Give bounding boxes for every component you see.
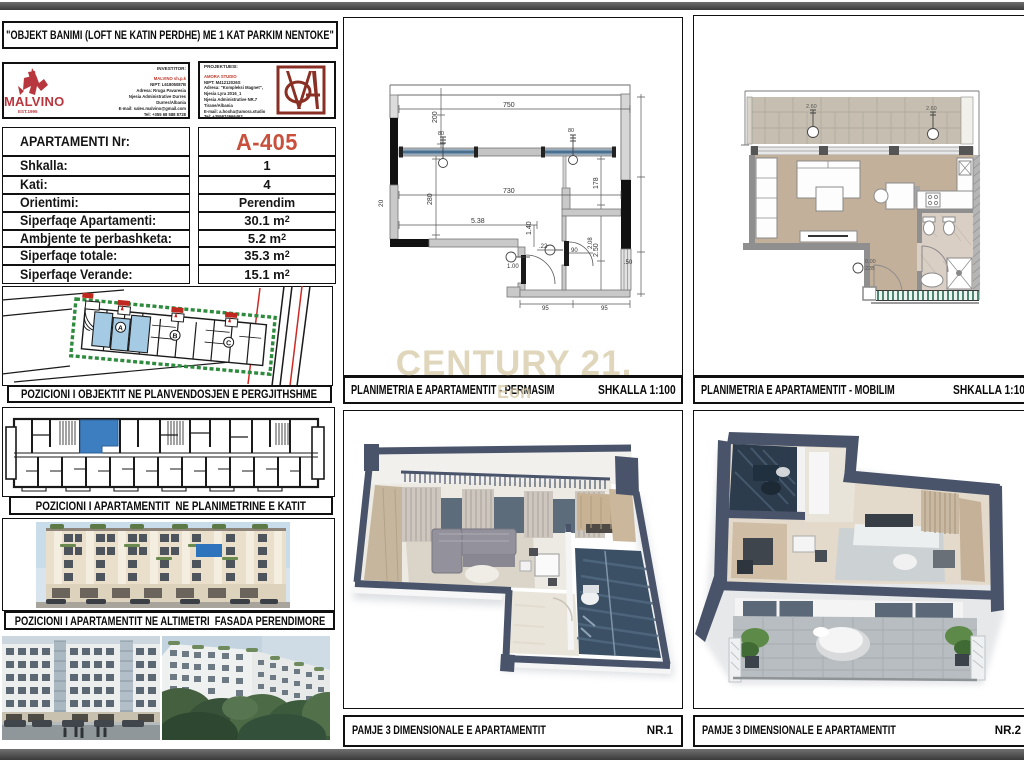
svg-text:22B: 22B <box>865 266 875 272</box>
svg-text:C: C <box>226 340 232 347</box>
svg-text:.22: .22 <box>539 244 548 250</box>
svg-text:5.38: 5.38 <box>471 218 485 225</box>
svg-text:95: 95 <box>542 306 549 312</box>
svg-text:80: 80 <box>568 128 574 134</box>
svg-text:0.00: 0.00 <box>865 259 876 265</box>
svg-text:2.08: 2.08 <box>588 237 594 249</box>
svg-text:2.50: 2.50 <box>593 243 600 257</box>
svg-text:750: 750 <box>503 102 515 109</box>
svg-text:200: 200 <box>432 111 439 123</box>
svg-text:MALVINO: MALVINO <box>4 94 64 109</box>
svg-text:280: 280 <box>427 193 434 205</box>
svg-text:90: 90 <box>571 248 578 254</box>
svg-text:1.00: 1.00 <box>507 264 519 270</box>
svg-text:730: 730 <box>503 188 515 195</box>
svg-text:80: 80 <box>438 131 444 137</box>
svg-text:95: 95 <box>601 306 608 312</box>
svg-text:20: 20 <box>378 199 385 207</box>
svg-text:178: 178 <box>593 177 600 189</box>
svg-text:.50: .50 <box>624 260 633 266</box>
svg-text:B: B <box>172 333 178 340</box>
svg-text:2.60: 2.60 <box>926 106 937 112</box>
svg-text:A: A <box>118 325 124 332</box>
svg-text:EST.1995: EST.1995 <box>18 109 38 114</box>
svg-text:1.40: 1.40 <box>526 221 533 235</box>
svg-text:2.60: 2.60 <box>806 104 817 110</box>
